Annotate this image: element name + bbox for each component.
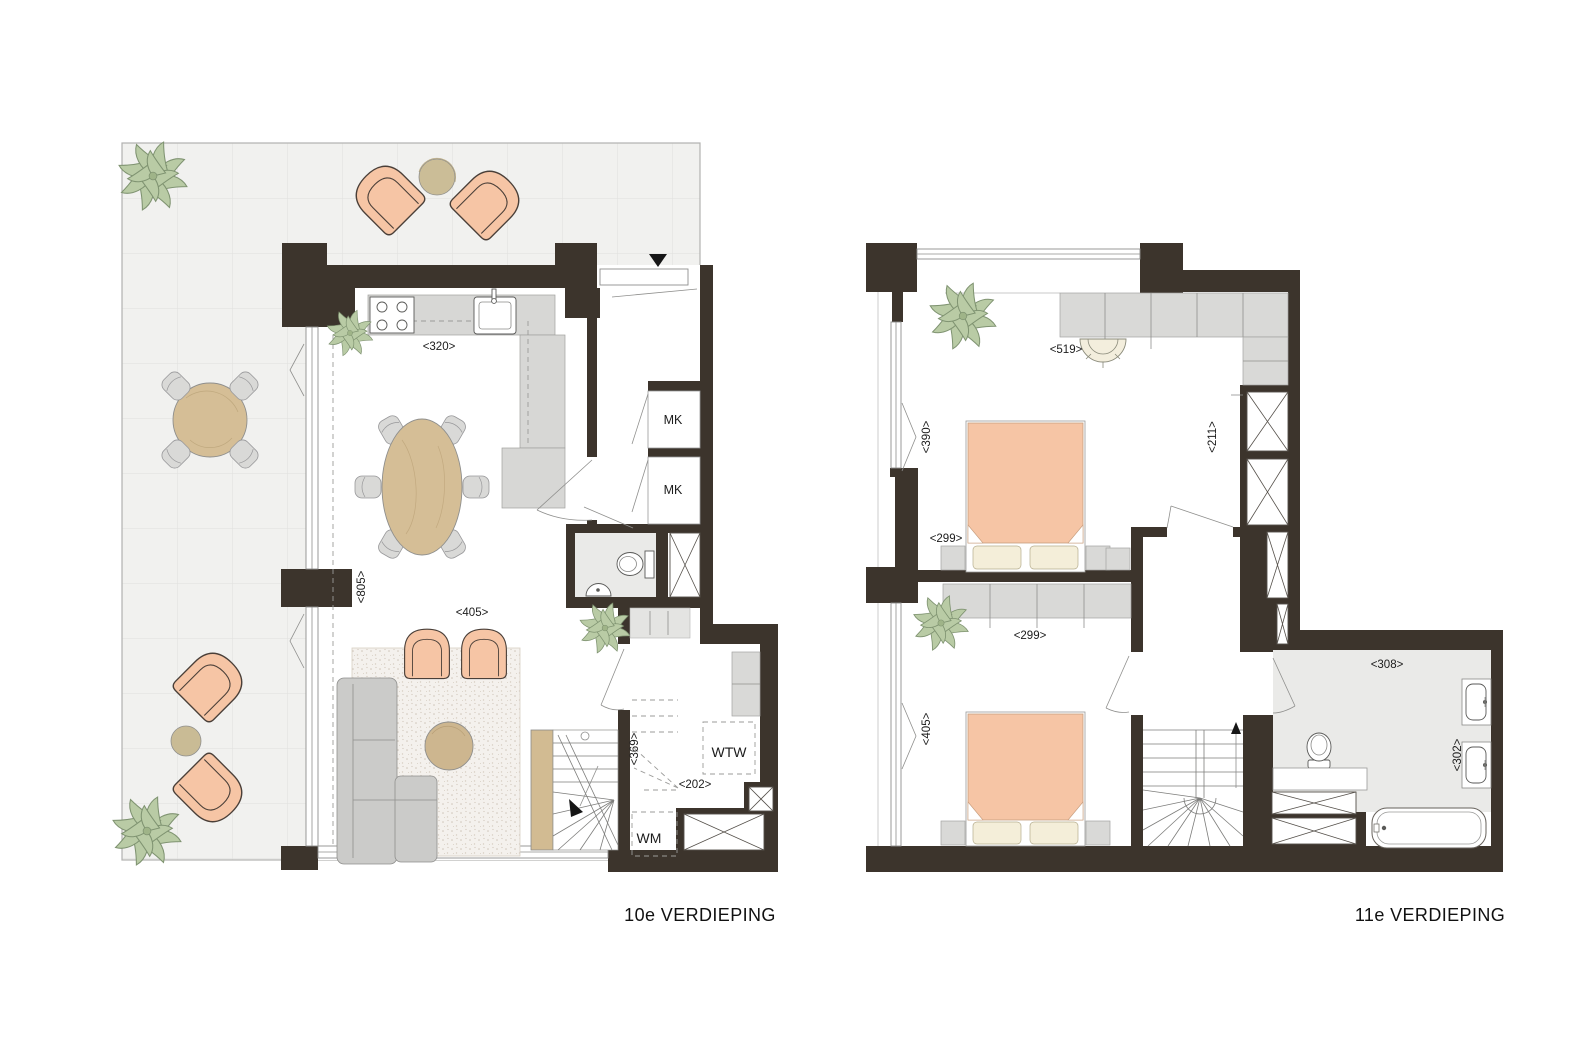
armchair <box>405 629 450 678</box>
toilet-floor <box>575 533 656 597</box>
stair-landing <box>630 608 690 638</box>
bathtub <box>1372 808 1486 848</box>
bedroom-2: <299> <405> <box>913 584 1131 846</box>
bedroom2-door-leaf <box>1106 656 1129 708</box>
dim-label-living-width: <405> <box>456 607 489 619</box>
dim-label-tech: <202> <box>679 779 712 791</box>
pillow <box>973 546 1021 569</box>
floorplan-10e: <320> <box>113 142 778 925</box>
bathroom: <308> <302> <box>1272 650 1491 848</box>
washbasin <box>1462 742 1491 788</box>
stair-up-arrow-icon <box>1231 722 1241 734</box>
stove <box>370 297 414 333</box>
floor10-title: 10e VERDIEPING <box>624 905 776 925</box>
pillow <box>1030 822 1078 844</box>
kitchen-counter <box>520 335 565 448</box>
cabinet <box>1106 548 1130 570</box>
floorplan-drawing: <320> <box>0 0 1596 1056</box>
pillow <box>1030 546 1078 569</box>
dim-label-bed2: <299> <box>1014 630 1047 642</box>
dining-chair <box>463 476 489 498</box>
vanity-shelf <box>1273 768 1367 790</box>
toilet-room <box>575 533 700 597</box>
stairs-11 <box>1143 722 1243 846</box>
side-table <box>419 159 455 195</box>
side-table <box>171 726 201 756</box>
dim-label-bathroom: <308> <box>1371 659 1404 671</box>
stairs-10 <box>531 730 618 850</box>
nightstand <box>941 821 965 845</box>
dim-label-bedroom2-window: <405> <box>921 712 933 745</box>
dining-table <box>382 419 462 555</box>
shaft-large <box>684 814 764 850</box>
dim-label-bedroom1-window: <390> <box>921 420 933 453</box>
armchair <box>462 629 507 678</box>
dim-label-kitchen: <320> <box>423 341 456 353</box>
floor11-title: 11e VERDIEPING <box>1355 905 1505 925</box>
washbasin <box>1462 679 1491 725</box>
entrance-door-sill <box>600 269 688 285</box>
stair-stringer <box>531 730 553 850</box>
dim-label-living-depth: <805> <box>356 570 368 603</box>
vanity-chair <box>1080 339 1126 368</box>
wm-label: WM <box>637 830 662 846</box>
dim-label-bed1: <299> <box>930 533 963 545</box>
bed-2 <box>941 712 1110 846</box>
floorplan-11e: <519> <390> <211> <299> <box>866 243 1505 925</box>
mk-label-2: MK <box>664 483 683 497</box>
bed-1 <box>941 421 1130 572</box>
closet-row <box>1060 293 1288 337</box>
shaft-small <box>749 787 773 811</box>
floorplan-canvas: <320> <box>0 0 1596 1056</box>
dim-label-stair: <369> <box>629 732 641 765</box>
terrace-dining-set <box>159 369 261 471</box>
nightstand <box>1086 821 1110 845</box>
toilet <box>1307 733 1331 768</box>
mk-label-1: MK <box>664 413 683 427</box>
wtw-label: WTW <box>712 744 748 760</box>
toilet <box>617 551 654 578</box>
bedroom1-door-leaf <box>1171 506 1233 527</box>
shaft <box>670 533 700 597</box>
dim-label-shaft: <211> <box>1207 421 1219 453</box>
coffee-table <box>425 722 473 770</box>
pillow <box>973 822 1021 844</box>
dining-chair <box>355 476 381 498</box>
kitchen-cabinet <box>502 448 565 508</box>
bathroom-shafts <box>1272 792 1356 844</box>
dim-label-bathroom-depth: <302> <box>1452 738 1464 771</box>
nightstand <box>941 546 965 570</box>
dim-label-bedroom1: <519> <box>1050 344 1083 356</box>
